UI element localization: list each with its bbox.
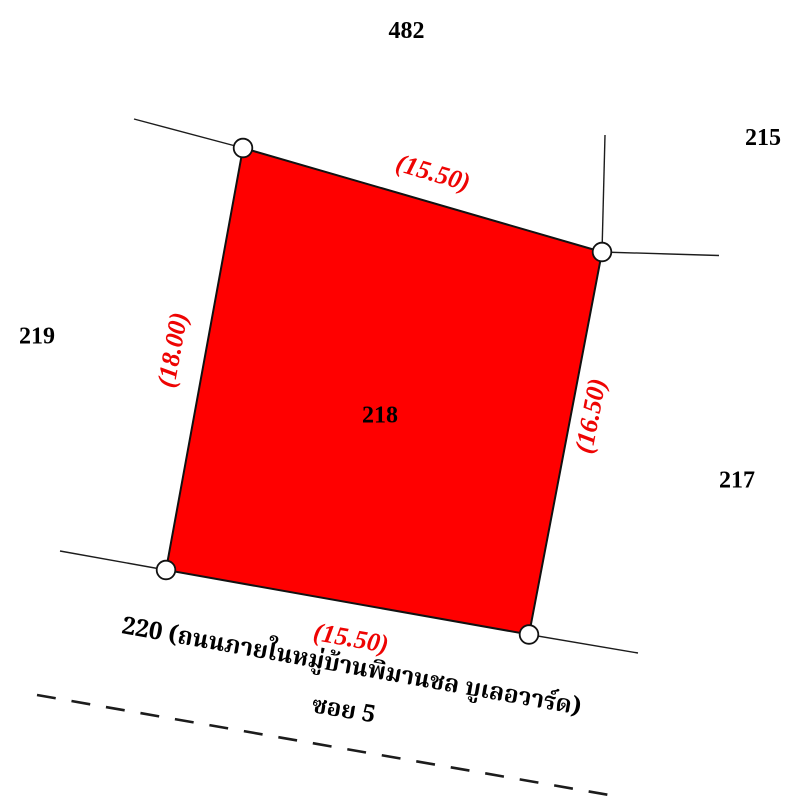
svg-text:482: 482 — [389, 18, 425, 44]
svg-text:(15.50): (15.50) — [393, 148, 474, 197]
svg-text:218: 218 — [362, 403, 398, 429]
svg-text:217: 217 — [719, 468, 755, 494]
svg-text:219: 219 — [19, 324, 55, 350]
svg-text:(18.00): (18.00) — [151, 310, 193, 390]
svg-text:215: 215 — [745, 125, 781, 151]
